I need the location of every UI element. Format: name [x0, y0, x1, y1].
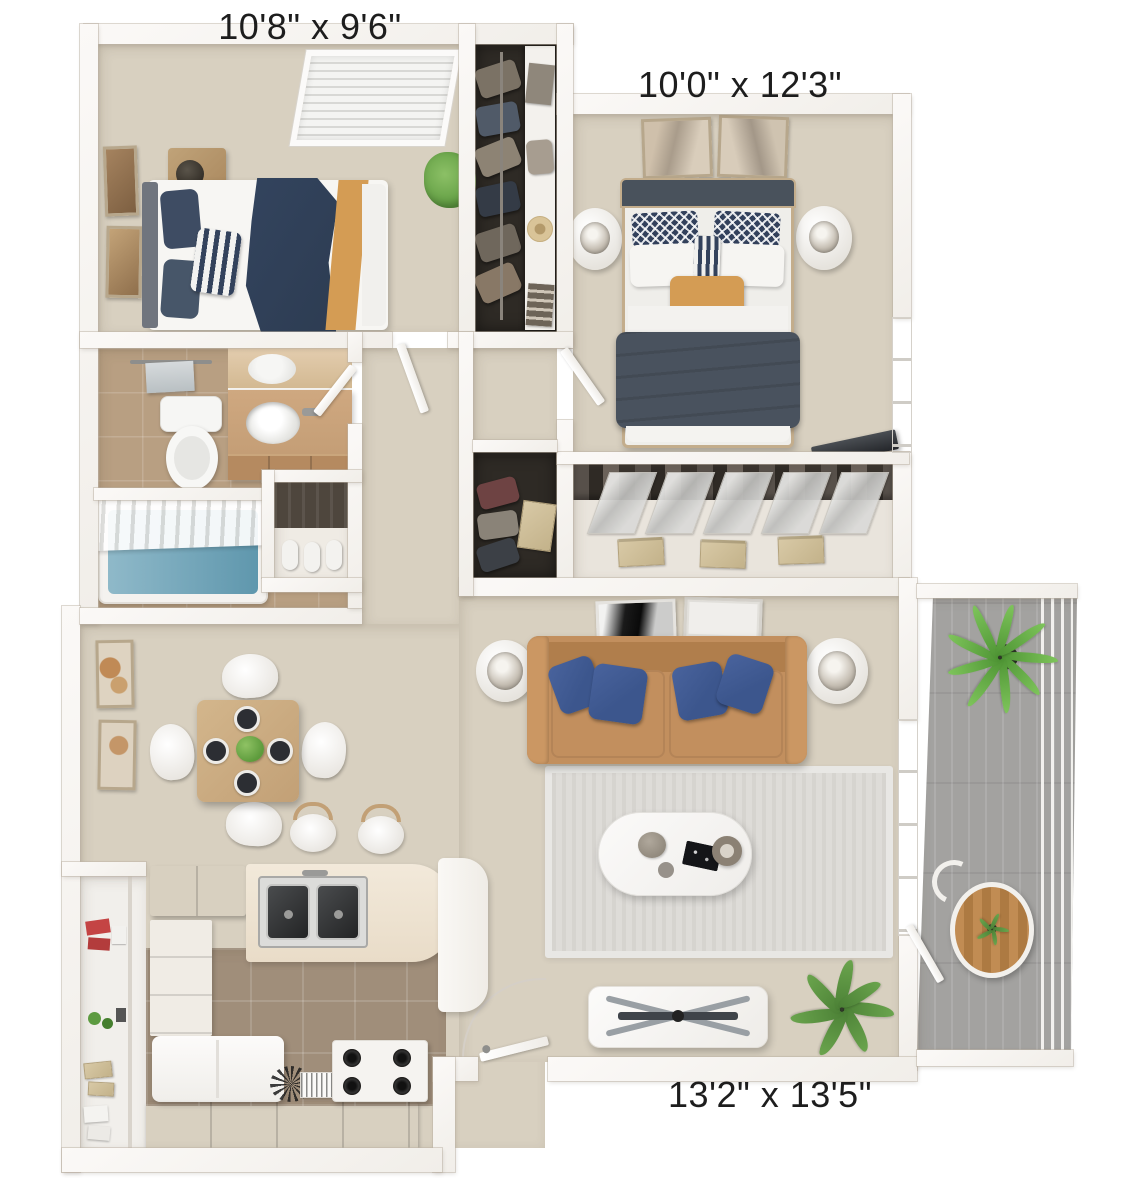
table-lamp — [809, 221, 839, 253]
master-nightstand-right — [796, 206, 852, 270]
burner — [343, 1049, 361, 1067]
navy-duvet — [616, 332, 800, 428]
bathtub — [98, 500, 268, 604]
mirror-sink-reflection — [248, 354, 296, 384]
burner — [393, 1049, 411, 1067]
foot-sheet — [626, 426, 790, 442]
towel — [145, 361, 195, 393]
kitchen-counter-end — [438, 858, 488, 1012]
navy-throw-blanket — [244, 178, 338, 332]
bathroom-vanity — [228, 390, 352, 480]
tv-mount-center — [672, 1010, 684, 1022]
stove-range — [332, 1040, 428, 1102]
wall-bath-right-upper — [348, 332, 362, 362]
decor-vase-small — [658, 862, 674, 878]
patterned-pillow — [713, 210, 781, 247]
sofa-arm — [785, 636, 807, 764]
kitchen-double-sink — [258, 876, 368, 948]
balcony-glass-door — [899, 720, 917, 935]
toilet — [158, 396, 226, 496]
rolled-towel — [282, 540, 298, 570]
art-frame — [103, 145, 139, 216]
decor-vase — [638, 832, 666, 858]
linen-closet-shelf — [274, 482, 348, 528]
master-nightstand-left — [568, 208, 622, 270]
pantry-item-red — [88, 937, 111, 951]
bar-stool — [290, 814, 336, 852]
balcony-plant — [942, 600, 1062, 708]
place-setting-plate — [267, 738, 293, 764]
wall-master-right-upper — [893, 94, 911, 318]
bedroom-small-bed — [148, 180, 388, 330]
art-frame — [105, 226, 142, 299]
coffee-table — [598, 812, 752, 896]
handbag — [526, 139, 555, 175]
decor-bowl — [712, 836, 742, 866]
pantry-box — [88, 1081, 115, 1096]
closet-storage-box — [778, 535, 825, 565]
mattress-foot — [362, 184, 386, 326]
wall-kitchen-bottom — [62, 1148, 442, 1172]
wall-hall-right — [459, 332, 473, 596]
side-table-left — [476, 640, 534, 702]
place-setting-plate — [234, 706, 260, 732]
pantry-item-green — [102, 1018, 113, 1029]
straw-hat — [527, 216, 553, 242]
bathroom-towel-bar — [130, 354, 212, 398]
art-frame-bw — [595, 599, 676, 642]
drain — [284, 910, 293, 919]
balcony-bistro-table — [946, 876, 1038, 986]
art-frame — [97, 720, 136, 791]
headboard — [142, 182, 158, 328]
floor-hallway — [362, 348, 459, 624]
pantry-item-jar — [112, 926, 126, 944]
burner — [393, 1077, 411, 1095]
wall-master-closet-divider — [557, 452, 909, 464]
closet-storage-box — [700, 539, 747, 569]
sink-basin — [266, 884, 310, 940]
wall-bedroom-closet-divider — [459, 24, 475, 348]
art-frame — [717, 115, 789, 179]
wall-left-upper — [80, 24, 98, 624]
dining-wall-art — [96, 640, 140, 792]
wall-pantry-top — [62, 862, 146, 876]
striped-pillow — [190, 227, 242, 297]
faucet — [302, 870, 328, 876]
place-setting-plate — [234, 770, 260, 796]
headboard — [620, 178, 796, 208]
wall-linen-left — [262, 470, 274, 578]
art-frame — [641, 117, 713, 179]
kitchen-lower-cabinet — [146, 1102, 418, 1150]
wall-balcony-bottom — [917, 1050, 1073, 1066]
living-room-plant — [786, 958, 898, 1054]
wall-linen-bottom — [262, 578, 362, 592]
bedroom-small-dimensions-label: 10'8" x 9'6" — [150, 6, 470, 48]
bedroom-small-wall-art — [104, 146, 144, 300]
patterned-pillow — [631, 210, 699, 247]
place-setting-plate — [203, 738, 229, 764]
art-frame — [95, 640, 134, 709]
floor-plan: 10'8" x 9'6" 10'0" x 12'3" 13'2" x 13'5" — [0, 0, 1128, 1186]
wall-bath-bottom — [80, 608, 362, 624]
wall-hall-closet-top — [473, 440, 557, 452]
table-lamp — [818, 651, 856, 691]
pantry-box-white — [83, 1105, 108, 1123]
entry-closet-shelf — [525, 46, 555, 330]
kitchen-drawer-stack — [150, 920, 212, 1036]
kitchen-upper-cabinet — [150, 866, 246, 916]
bistro-plant — [976, 912, 1008, 944]
wall-tub-enclosure — [94, 488, 270, 500]
storage-box — [525, 63, 555, 105]
bedroom-small-window-blinds — [290, 50, 462, 146]
wall-bedroom-bath-left — [80, 332, 392, 348]
sofa-arm — [527, 636, 549, 764]
wall-closet-master-lower — [557, 420, 573, 584]
closet-storage-box — [517, 500, 557, 552]
accent-pillow-small — [693, 236, 720, 279]
pantry-item-green — [88, 1012, 101, 1025]
rolled-towel — [326, 540, 342, 570]
wall-linen-top — [262, 470, 362, 482]
side-table-right — [806, 638, 868, 704]
living-room-dimensions-label: 13'2" x 13'5" — [600, 1074, 940, 1116]
vanity-sink — [246, 402, 300, 444]
entry-closet-rod — [500, 52, 503, 320]
master-bed — [622, 180, 794, 448]
master-bedroom-window — [893, 318, 911, 452]
refrigerator — [152, 1036, 284, 1102]
pantry-shelf-edge — [128, 876, 132, 1148]
rolled-towel — [304, 542, 320, 572]
burner — [343, 1077, 361, 1095]
wall-master-right-lower — [893, 452, 911, 584]
pantry-box — [83, 1061, 113, 1080]
closet-storage-box — [617, 537, 664, 567]
bar-stool — [358, 816, 404, 854]
wall-balcony-top — [917, 584, 1077, 598]
master-bedroom-dimensions-label: 10'0" x 12'3" — [585, 64, 895, 106]
tv-console — [588, 986, 768, 1048]
floor-hall-nook — [473, 348, 557, 440]
pantry-item-dark — [116, 1008, 126, 1022]
wall-left-lower — [62, 606, 80, 1172]
pantry-box-white — [87, 1125, 110, 1141]
throw-pillow — [587, 663, 648, 726]
striped-bag — [526, 283, 555, 327]
table-lamp — [580, 222, 610, 254]
sink-basin — [316, 884, 360, 940]
drain — [334, 910, 343, 919]
hanging-clothes — [476, 509, 519, 540]
table-lamp — [487, 652, 523, 690]
wall-closet-master-upper — [557, 24, 573, 348]
fridge-seam — [216, 1040, 219, 1098]
wall-living-right-lower — [899, 935, 917, 1070]
master-wall-art — [642, 116, 792, 182]
sofa — [527, 636, 807, 764]
art-frame-light — [683, 597, 762, 642]
wall-living-right-upper — [899, 578, 917, 720]
toilet-seat — [174, 436, 210, 480]
wall-living-top — [459, 578, 909, 596]
table-centerpiece-plant — [236, 736, 264, 762]
